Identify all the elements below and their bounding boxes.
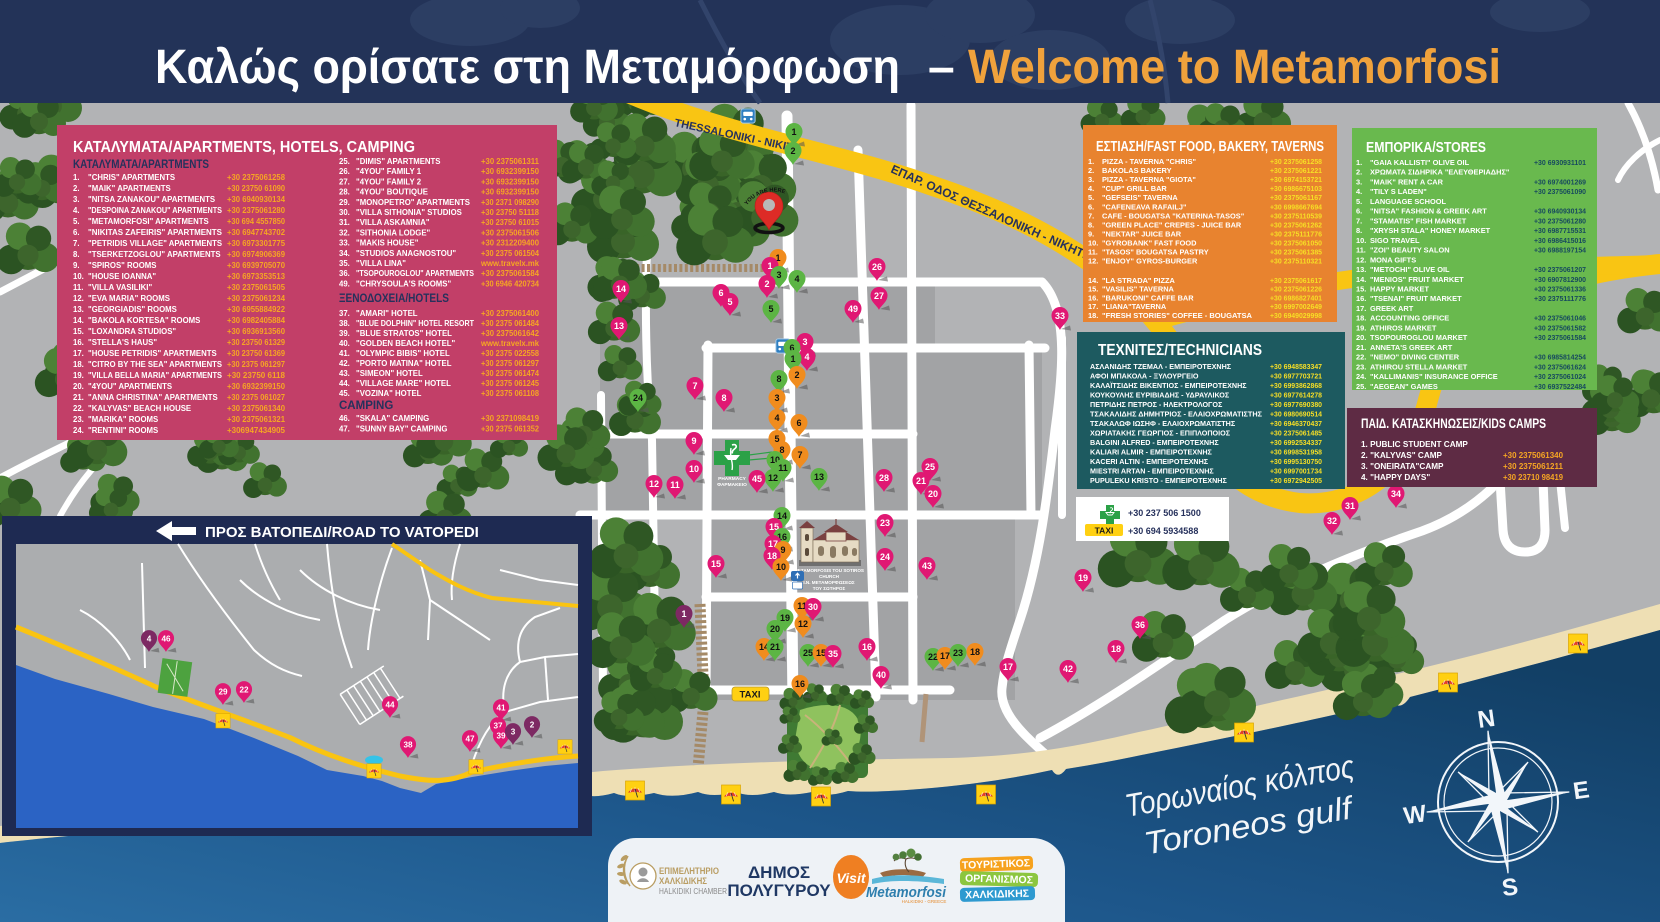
svg-text:ΠΕΤΡΙΔΗΣ ΠΕΤΡΟΣ - ΗΛΕΚΤΡΟΛΟΓΟΣ: ΠΕΤΡΙΔΗΣ ΠΕΤΡΟΣ - ΗΛΕΚΤΡΟΛΟΓΟΣ bbox=[1090, 400, 1223, 409]
svg-text:"EVA MARIA" ROOMS: "EVA MARIA" ROOMS bbox=[88, 294, 170, 303]
svg-text:9: 9 bbox=[691, 436, 696, 446]
svg-text:+30 6988197154: +30 6988197154 bbox=[1534, 246, 1587, 255]
svg-text:47.: 47. bbox=[339, 425, 350, 434]
svg-text:8.: 8. bbox=[1356, 226, 1362, 235]
svg-text:+30 2375061090: +30 2375061090 bbox=[1534, 187, 1586, 196]
svg-text:"GEFSEIS" TAVERNA: "GEFSEIS" TAVERNA bbox=[1102, 193, 1178, 202]
svg-text:35: 35 bbox=[828, 649, 838, 659]
svg-text:Visit: Visit bbox=[836, 870, 866, 886]
svg-text:8: 8 bbox=[776, 374, 781, 384]
svg-text:+30 2375061400: +30 2375061400 bbox=[481, 309, 540, 318]
svg-text:23.: 23. bbox=[1356, 362, 1366, 371]
svg-text:7: 7 bbox=[797, 450, 802, 460]
svg-text:PHARMACY: PHARMACY bbox=[718, 476, 747, 482]
svg-text:+30 6998667694: +30 6998667694 bbox=[1270, 202, 1323, 211]
svg-text:38: 38 bbox=[403, 741, 413, 750]
svg-text:2: 2 bbox=[764, 279, 769, 289]
svg-text:+30 2375061340: +30 2375061340 bbox=[1503, 451, 1563, 460]
svg-text:17.: 17. bbox=[1088, 302, 1098, 311]
svg-text:+30 6998531958: +30 6998531958 bbox=[1270, 448, 1322, 457]
svg-text:34: 34 bbox=[1391, 489, 1401, 499]
svg-text:ΕΣΤΙΑΣΗ/FAST FOOD, BAKERY, TAV: ΕΣΤΙΑΣΗ/FAST FOOD, BAKERY, TAVERNS bbox=[1096, 139, 1324, 155]
svg-text:ATHIROS MARKET: ATHIROS MARKET bbox=[1370, 323, 1437, 332]
svg-text:33: 33 bbox=[1055, 311, 1065, 321]
svg-text:9.: 9. bbox=[73, 261, 80, 270]
svg-text:ΤΣΑΚΑΛΩΦ ΙΩΣΗΦ - ΕΛΑΙΟΧΡΩΜΑΤΙΣ: ΤΣΑΚΑΛΩΦ ΙΩΣΗΦ - ΕΛΑΙΟΧΡΩΜΑΤΙΣΤΗΣ bbox=[1090, 419, 1236, 428]
svg-text:ΤΟΥ ΣΩΤΗΡΟΣ: ΤΟΥ ΣΩΤΗΡΟΣ bbox=[813, 586, 846, 591]
svg-text:"TSERKETZOGLOU" APARTMENTS: "TSERKETZOGLOU" APARTMENTS bbox=[88, 250, 221, 259]
svg-text:+30 23750 61369: +30 23750 61369 bbox=[227, 349, 286, 358]
svg-text:2: 2 bbox=[530, 721, 535, 730]
svg-text:6: 6 bbox=[718, 288, 723, 298]
svg-text:46: 46 bbox=[161, 635, 171, 644]
svg-text:49: 49 bbox=[848, 304, 858, 314]
svg-text:"CITRO BY THE SEA" APARTMENTS: "CITRO BY THE SEA" APARTMENTS bbox=[88, 360, 222, 369]
svg-text:6: 6 bbox=[796, 418, 801, 428]
svg-text:+30 6986675103: +30 6986675103 bbox=[1270, 184, 1322, 193]
svg-text:21: 21 bbox=[770, 642, 780, 652]
svg-text:ΞΕΝΟΔΟΧΕΙΑ/HOTELS: ΞΕΝΟΔΟΧΕΙΑ/HOTELS bbox=[339, 293, 449, 305]
svg-text:7.: 7. bbox=[1356, 216, 1362, 225]
svg-text:7: 7 bbox=[692, 381, 697, 391]
svg-text:31.: 31. bbox=[339, 218, 350, 227]
svg-text:+30 2375061167: +30 2375061167 bbox=[1270, 193, 1322, 202]
svg-text:30.: 30. bbox=[339, 208, 350, 217]
svg-text:"VILLA LINA": "VILLA LINA" bbox=[356, 259, 406, 268]
svg-text:4.: 4. bbox=[1356, 187, 1362, 196]
svg-text:3: 3 bbox=[511, 728, 516, 737]
svg-text:20: 20 bbox=[928, 489, 938, 499]
svg-text:+30 6940930134: +30 6940930134 bbox=[227, 195, 286, 204]
svg-text:7.: 7. bbox=[1088, 211, 1094, 220]
svg-text:5.: 5. bbox=[1088, 193, 1094, 202]
svg-text:+30 6993862868: +30 6993862868 bbox=[1270, 381, 1322, 390]
svg-text:6.: 6. bbox=[73, 228, 80, 237]
svg-text:"VILLA ASKAMNIA": "VILLA ASKAMNIA" bbox=[356, 218, 430, 227]
svg-text:4.: 4. bbox=[73, 206, 80, 215]
svg-text:+30 6992534337: +30 6992534337 bbox=[1270, 438, 1322, 447]
svg-text:4: 4 bbox=[804, 352, 809, 362]
svg-text:"NEMO" DIVING CENTER: "NEMO" DIVING CENTER bbox=[1370, 353, 1460, 362]
svg-text:18.: 18. bbox=[1356, 314, 1366, 323]
svg-text:ΑΦΟΙ ΜΠΑΚΟΛΑ - ΞΥΛΟΥΡΓΕΙΟ: ΑΦΟΙ ΜΠΑΚΟΛΑ - ΞΥΛΟΥΡΓΕΙΟ bbox=[1090, 372, 1199, 381]
svg-text:20.: 20. bbox=[73, 382, 84, 391]
svg-text:ΤΣΑΚΑΛΙΔΗΣ ΔΗΜΗΤΡΙΟΣ - ΕΛΑΙΟΧΡ: ΤΣΑΚΑΛΙΔΗΣ ΔΗΜΗΤΡΙΟΣ - ΕΛΑΙΟΧΡΩΜΑΤΙΣΤΗΣ bbox=[1090, 410, 1263, 419]
svg-text:4. "HAPPY DAYS": 4. "HAPPY DAYS" bbox=[1361, 473, 1430, 482]
svg-text:34.: 34. bbox=[339, 249, 350, 258]
svg-text:"MAIK" APARTMENTS: "MAIK" APARTMENTS bbox=[88, 184, 171, 193]
svg-text:+30 2371098419: +30 2371098419 bbox=[481, 414, 540, 423]
svg-text:+30 2375110321: +30 2375110321 bbox=[1270, 257, 1322, 266]
svg-text:"MONOPETRO" APARTMENTS: "MONOPETRO" APARTMENTS bbox=[356, 198, 470, 207]
svg-text:SIGO TRAVEL: SIGO TRAVEL bbox=[1370, 236, 1420, 245]
svg-text:12.: 12. bbox=[1088, 257, 1098, 266]
svg-text:+30 2375 022558: +30 2375 022558 bbox=[481, 349, 540, 358]
svg-text:13: 13 bbox=[814, 472, 824, 482]
svg-text:HALKIDIKI CHAMBER: HALKIDIKI CHAMBER bbox=[659, 886, 727, 896]
svg-text:+30 6936913560: +30 6936913560 bbox=[227, 327, 286, 336]
svg-text:10.: 10. bbox=[1088, 239, 1098, 248]
svg-text:16: 16 bbox=[862, 642, 872, 652]
svg-text:"GOLDEN BEACH HOTEL": "GOLDEN BEACH HOTEL" bbox=[356, 339, 456, 348]
svg-text:+30 6946370437: +30 6946370437 bbox=[1270, 419, 1322, 428]
svg-text:32: 32 bbox=[1327, 516, 1337, 526]
svg-text:PIZZA - TAVERNA "CHRIS": PIZZA - TAVERNA "CHRIS" bbox=[1102, 157, 1197, 166]
svg-text:"NITSA" FASHION & GREEK ART: "NITSA" FASHION & GREEK ART bbox=[1370, 207, 1487, 216]
svg-text:KACERI ALTIN - ΕΜΠΕΙΡΟΤΕΧΝΗΣ: KACERI ALTIN - ΕΜΠΕΙΡΟΤΕΧΝΗΣ bbox=[1090, 457, 1209, 466]
svg-text:MIESTRI ARTAN - ΕΜΠΕΙΡΟΤΕΧΝΗΣ: MIESTRI ARTAN - ΕΜΠΕΙΡΟΤΕΧΝΗΣ bbox=[1090, 467, 1214, 476]
svg-text:5: 5 bbox=[768, 304, 773, 314]
svg-text:+30 6937522484: +30 6937522484 bbox=[1534, 382, 1587, 391]
svg-text:36.: 36. bbox=[339, 269, 350, 278]
svg-text:"DIMIS" APARTMENTS: "DIMIS" APARTMENTS bbox=[356, 157, 441, 166]
svg-text:+30 694 4557850: +30 694 4557850 bbox=[227, 217, 286, 226]
svg-text:+30 2375110539: +30 2375110539 bbox=[1270, 211, 1322, 220]
svg-text:GREEK ART: GREEK ART bbox=[1370, 304, 1414, 313]
svg-text:"SIMEON" HOTEL: "SIMEON" HOTEL bbox=[356, 369, 423, 378]
svg-text:+30 2375061642: +30 2375061642 bbox=[481, 329, 540, 338]
svg-text:TSOPOUROGLOU MARKET: TSOPOUROGLOU MARKET bbox=[1370, 333, 1468, 342]
svg-text:+30 2375061226: +30 2375061226 bbox=[1270, 285, 1322, 294]
svg-text:22: 22 bbox=[239, 686, 249, 695]
svg-text:+30 6995130750: +30 6995130750 bbox=[1270, 457, 1322, 466]
svg-text:METAMORFOSIS TOU SOTIROS: METAMORFOSIS TOU SOTIROS bbox=[794, 568, 864, 573]
svg-text:21.: 21. bbox=[1356, 343, 1366, 352]
svg-text:"NEKTAR" JUICE BAR: "NEKTAR" JUICE BAR bbox=[1102, 229, 1182, 238]
svg-text:+30 6932399150: +30 6932399150 bbox=[481, 188, 540, 197]
svg-text:35.: 35. bbox=[339, 259, 350, 268]
svg-text:TAXI: TAXI bbox=[1095, 526, 1114, 536]
svg-text:Καλώς ορίσατε στη Μεταμόρφωση: Καλώς ορίσατε στη Μεταμόρφωση bbox=[155, 41, 900, 94]
svg-text:24.: 24. bbox=[1356, 372, 1366, 381]
svg-text:44: 44 bbox=[385, 701, 395, 710]
svg-text:1.: 1. bbox=[1356, 158, 1362, 167]
svg-text:+30 2375061336: +30 2375061336 bbox=[1534, 285, 1586, 294]
svg-text:+30 6986827401: +30 6986827401 bbox=[1270, 293, 1322, 302]
svg-text:www.travelx.mk: www.travelx.mk bbox=[480, 259, 540, 268]
svg-text:+30 694 5934588: +30 694 5934588 bbox=[1128, 526, 1198, 536]
svg-text:3.: 3. bbox=[1088, 175, 1094, 184]
svg-text:40: 40 bbox=[876, 670, 886, 680]
svg-text:42: 42 bbox=[1063, 664, 1073, 674]
svg-text:"4YOU" FAMILY 1: "4YOU" FAMILY 1 bbox=[356, 167, 422, 176]
svg-text:"GYROBANK" FAST FOOD: "GYROBANK" FAST FOOD bbox=[1102, 239, 1197, 248]
svg-text:9: 9 bbox=[780, 545, 785, 555]
svg-text:43.: 43. bbox=[339, 369, 350, 378]
svg-text:ΔΗΜΟΣ: ΔΗΜΟΣ bbox=[748, 863, 810, 882]
svg-text:+30 23750 61329: +30 23750 61329 bbox=[227, 338, 286, 347]
svg-text:24: 24 bbox=[880, 552, 890, 562]
svg-text:ACCOUNTING OFFICE: ACCOUNTING OFFICE bbox=[1370, 314, 1449, 323]
svg-text:ΠΡΟΣ ΒΑΤΟΠΕΔΙ/ROAD TO VATOPEDI: ΠΡΟΣ ΒΑΤΟΠΕΔΙ/ROAD TO VATOPEDI bbox=[205, 524, 479, 541]
svg-text:2.: 2. bbox=[73, 184, 80, 193]
svg-text:2. "KALYVAS" CAMP: 2. "KALYVAS" CAMP bbox=[1361, 451, 1443, 460]
svg-text:PIZZA - TAVERNA "GIOTA": PIZZA - TAVERNA "GIOTA" bbox=[1102, 175, 1196, 184]
svg-text:1.: 1. bbox=[1088, 157, 1094, 166]
svg-text:"BLUE STRATOS" HOTEL: "BLUE STRATOS" HOTEL bbox=[356, 329, 452, 338]
svg-text:17.: 17. bbox=[1356, 304, 1366, 313]
svg-text:15.: 15. bbox=[73, 327, 84, 336]
svg-text:ΟΡΓΑΝΙΣΜΟΣ: ΟΡΓΑΝΙΣΜΟΣ bbox=[965, 873, 1033, 887]
svg-text:+30 2375061050: +30 2375061050 bbox=[1270, 239, 1322, 248]
svg-text:21.: 21. bbox=[73, 393, 84, 402]
svg-text:44.: 44. bbox=[339, 379, 350, 388]
svg-text:"MAIK" RENT A CAR: "MAIK" RENT A CAR bbox=[1370, 178, 1444, 187]
svg-text:"PORTO MATINA" HOTEL: "PORTO MATINA" HOTEL bbox=[356, 359, 452, 368]
svg-text:ΧΩΡΙΑΤΑΚΗΣ ΓΕΩΡΓΙΟΣ - ΕΠΙΠΛΟΠΟ: ΧΩΡΙΑΤΑΚΗΣ ΓΕΩΡΓΙΟΣ - ΕΠΙΠΛΟΠΟΙΟΣ bbox=[1090, 429, 1231, 438]
svg-text:+30 6985814254: +30 6985814254 bbox=[1534, 353, 1587, 362]
svg-text:23.: 23. bbox=[73, 415, 84, 424]
svg-text:"TSENAI" FRUIT MARKET: "TSENAI" FRUIT MARKET bbox=[1370, 294, 1462, 303]
svg-text:+30 2375061506: +30 2375061506 bbox=[481, 228, 540, 237]
svg-text:11.: 11. bbox=[1088, 248, 1098, 257]
svg-text:11: 11 bbox=[670, 480, 680, 490]
svg-text:"VILLA SITHONIA" STUDIOS: "VILLA SITHONIA" STUDIOS bbox=[356, 208, 462, 217]
svg-text:www.travelx.mk: www.travelx.mk bbox=[480, 339, 540, 348]
svg-text:"MARIKA" ROOMS: "MARIKA" ROOMS bbox=[88, 415, 158, 424]
svg-text:16.: 16. bbox=[1356, 294, 1366, 303]
svg-text:37.: 37. bbox=[339, 309, 350, 318]
svg-text:"KALLIMANIS" INSURANCE OFFICE: "KALLIMANIS" INSURANCE OFFICE bbox=[1370, 372, 1498, 381]
svg-text:"BARUKONI" CAFFE BAR: "BARUKONI" CAFFE BAR bbox=[1102, 293, 1194, 302]
svg-text:2.: 2. bbox=[1356, 168, 1362, 177]
svg-text:4: 4 bbox=[147, 635, 152, 644]
svg-text:CAFE - BOUGATSA "KATERINA-TASO: CAFE - BOUGATSA "KATERINA-TASOS" bbox=[1102, 211, 1245, 220]
svg-text:1: 1 bbox=[767, 261, 772, 271]
svg-text:11.: 11. bbox=[1356, 246, 1366, 255]
svg-text:"4YOU" FAMILY 2: "4YOU" FAMILY 2 bbox=[356, 177, 422, 186]
svg-text:1: 1 bbox=[790, 354, 795, 364]
svg-text:22.: 22. bbox=[73, 404, 84, 413]
svg-text:ΚΟΥΚΟΥΛΗΣ ΕΥΡΙΒΙΑΔΗΣ - ΥΔΡΑΥΛΙ: ΚΟΥΚΟΥΛΗΣ ΕΥΡΙΒΙΑΔΗΣ - ΥΔΡΑΥΛΙΚΟΣ bbox=[1090, 391, 1230, 400]
svg-text:ΕΠΙΜΕΛΗΤΗΡΙΟ: ΕΠΙΜΕΛΗΤΗΡΙΟ bbox=[659, 866, 719, 876]
svg-text:22.: 22. bbox=[1356, 353, 1366, 362]
svg-text:28.: 28. bbox=[339, 188, 350, 197]
svg-text:+30 2375 061352: +30 2375 061352 bbox=[481, 425, 540, 434]
svg-text:19.: 19. bbox=[73, 371, 84, 380]
svg-text:31: 31 bbox=[1345, 501, 1355, 511]
svg-text:5: 5 bbox=[727, 297, 732, 307]
svg-text:+30 2375061280: +30 2375061280 bbox=[1534, 216, 1586, 225]
svg-text:18.: 18. bbox=[73, 360, 84, 369]
svg-text:"RENTINI" ROOMS: "RENTINI" ROOMS bbox=[88, 426, 158, 435]
svg-text:8: 8 bbox=[721, 393, 726, 403]
svg-text:+30 2375061311: +30 2375061311 bbox=[481, 157, 540, 166]
svg-text:45: 45 bbox=[752, 474, 762, 484]
svg-text:"NIKITAS ZAFEIRIS" APARTMENTS: "NIKITAS ZAFEIRIS" APARTMENTS bbox=[88, 228, 222, 237]
svg-text:+30 6932399150: +30 6932399150 bbox=[481, 167, 540, 176]
svg-text:20.: 20. bbox=[1356, 333, 1366, 342]
svg-text:25.: 25. bbox=[339, 157, 350, 166]
svg-text:+30 23750 6118: +30 23750 6118 bbox=[227, 371, 286, 380]
svg-text:+30 6986415016: +30 6986415016 bbox=[1534, 236, 1586, 245]
svg-text:+30 2375061617: +30 2375061617 bbox=[1270, 276, 1322, 285]
svg-text:"STUDIOS ANAGNOSTOU": "STUDIOS ANAGNOSTOU" bbox=[356, 249, 456, 258]
svg-text:+30 2375 061027: +30 2375 061027 bbox=[227, 393, 285, 402]
svg-text:+30 6974153721: +30 6974153721 bbox=[1270, 175, 1322, 184]
svg-text:"SKALA" CAMPING: "SKALA" CAMPING bbox=[356, 414, 429, 423]
svg-text:14.: 14. bbox=[1356, 275, 1366, 284]
svg-text:KALIARI ALMIR - ΕΜΠΕΙΡΟΤΕΧΝΗΣ: KALIARI ALMIR - ΕΜΠΕΙΡΟΤΕΧΝΗΣ bbox=[1090, 448, 1213, 457]
svg-text:ΚΑΛΑΪΤΣΙΔΗΣ ΒΙΚΕΝΤΙΟΣ - ΕΜΠΕΙΡ: ΚΑΛΑΪΤΣΙΔΗΣ ΒΙΚΕΝΤΙΟΣ - ΕΜΠΕΙΡΟΤΕΧΝΗΣ bbox=[1090, 381, 1247, 390]
svg-text:13.: 13. bbox=[1356, 265, 1366, 274]
svg-text:"TILY S LADEN": "TILY S LADEN" bbox=[1370, 187, 1427, 196]
svg-text:+30 6974001269: +30 6974001269 bbox=[1534, 178, 1586, 187]
svg-text:39.: 39. bbox=[339, 329, 350, 338]
svg-text:+30 2375061234: +30 2375061234 bbox=[227, 294, 286, 303]
svg-text:45.: 45. bbox=[339, 389, 350, 398]
svg-text:+30 23750 61015: +30 23750 61015 bbox=[481, 218, 540, 227]
svg-text:5.: 5. bbox=[73, 217, 80, 226]
svg-text:2.: 2. bbox=[1088, 166, 1094, 175]
svg-text:49.: 49. bbox=[339, 279, 350, 288]
svg-text:+30 2375061582: +30 2375061582 bbox=[1534, 323, 1586, 332]
svg-text:39: 39 bbox=[496, 732, 506, 741]
svg-text:+30 2375 061297: +30 2375 061297 bbox=[227, 360, 285, 369]
svg-text:+30 2375061221: +30 2375061221 bbox=[1270, 166, 1322, 175]
svg-text:19.: 19. bbox=[1356, 323, 1366, 332]
svg-text:"TSOPOUROGLOU" APARTMENTS: "TSOPOUROGLOU" APARTMENTS bbox=[356, 269, 474, 278]
svg-text:"VILLA BELLA MARIA" APARTMENTS: "VILLA BELLA MARIA" APARTMENTS bbox=[88, 371, 222, 380]
svg-text:ΧΡΩΜΑΤΑ ΣΙΔΗΡΙΚΑ "ΕΛΕΥΘΕΡΙΑΔΗΣ: ΧΡΩΜΑΤΑ ΣΙΔΗΡΙΚΑ "ΕΛΕΥΘΕΡΙΑΔΗΣ" bbox=[1370, 168, 1510, 177]
svg-text:3: 3 bbox=[802, 337, 807, 347]
svg-text:"DESPOINA ZANAKOU" APARTMENTS: "DESPOINA ZANAKOU" APARTMENTS bbox=[88, 206, 222, 215]
svg-text:BALGINI ALFRED - ΕΜΠΕΙΡΟΤΕΧΝΗΣ: BALGINI ALFRED - ΕΜΠΕΙΡΟΤΕΧΝΗΣ bbox=[1090, 438, 1219, 447]
svg-text:18: 18 bbox=[1111, 644, 1121, 654]
svg-text:36: 36 bbox=[1135, 620, 1145, 630]
svg-text:24.: 24. bbox=[73, 426, 84, 435]
svg-text:+30 6977690380: +30 6977690380 bbox=[1270, 400, 1322, 409]
svg-text:10.: 10. bbox=[1356, 236, 1366, 245]
svg-text:1: 1 bbox=[681, 609, 686, 619]
svg-text:42.: 42. bbox=[339, 359, 350, 368]
svg-text:3.: 3. bbox=[73, 195, 80, 204]
svg-text:+30 2375061340: +30 2375061340 bbox=[227, 404, 286, 413]
svg-text:"VASILIS" TAVERNA: "VASILIS" TAVERNA bbox=[1102, 285, 1175, 294]
svg-text:+30 6987715531: +30 6987715531 bbox=[1534, 226, 1586, 235]
svg-text:"FRESH STORIES" COFFEE - BOUGA: "FRESH STORIES" COFFEE - BOUGATSA bbox=[1102, 311, 1253, 320]
svg-text:14.: 14. bbox=[1088, 276, 1098, 285]
svg-text:41.: 41. bbox=[339, 349, 350, 358]
svg-text:11.: 11. bbox=[73, 283, 83, 292]
svg-text:38.: 38. bbox=[339, 319, 350, 328]
svg-text:18: 18 bbox=[970, 647, 980, 657]
svg-text:28: 28 bbox=[879, 473, 889, 483]
svg-text:15: 15 bbox=[711, 559, 721, 569]
svg-text:"CUP" GRILL BAR: "CUP" GRILL BAR bbox=[1102, 184, 1167, 193]
svg-text:+30 6973301775: +30 6973301775 bbox=[227, 239, 286, 248]
svg-text:"MAKIS HOUSE": "MAKIS HOUSE" bbox=[356, 239, 419, 248]
svg-text:17: 17 bbox=[940, 651, 950, 661]
svg-text:25.: 25. bbox=[1356, 382, 1366, 391]
svg-text:ANNETA'S GREEK ART: ANNETA'S GREEK ART bbox=[1370, 343, 1453, 352]
svg-text:+30 6997002649: +30 6997002649 bbox=[1270, 302, 1322, 311]
svg-text:8.: 8. bbox=[1088, 220, 1094, 229]
svg-text:"METOCHI" OLIVE OIL: "METOCHI" OLIVE OIL bbox=[1370, 265, 1450, 274]
svg-text:HAPPY MARKET: HAPPY MARKET bbox=[1370, 285, 1429, 294]
svg-text:+30 6977703721: +30 6977703721 bbox=[1270, 372, 1322, 381]
svg-text:+30 6907812900: +30 6907812900 bbox=[1534, 275, 1586, 284]
svg-text:33.: 33. bbox=[339, 239, 350, 248]
svg-text:+30 2375061624: +30 2375061624 bbox=[1534, 362, 1587, 371]
svg-text:"HOUSE PETRIDIS" APARTMENTS: "HOUSE PETRIDIS" APARTMENTS bbox=[88, 349, 217, 358]
svg-text:12.: 12. bbox=[1356, 255, 1366, 264]
svg-text:"GEORGIADIS" ROOMS: "GEORGIADIS" ROOMS bbox=[88, 305, 177, 314]
svg-text:17.: 17. bbox=[73, 349, 84, 358]
svg-text:ΚΑΤΑΛΥΜΑΤΑ/APARTMENTS: ΚΑΤΑΛΥΜΑΤΑ/APARTMENTS bbox=[73, 159, 209, 171]
svg-text:23: 23 bbox=[953, 648, 963, 658]
svg-text:"LIANA"TAVERNA: "LIANA"TAVERNA bbox=[1102, 302, 1167, 311]
svg-text:+30 2375061321: +30 2375061321 bbox=[227, 415, 286, 424]
svg-text:ATHIROU STELLA MARKET: ATHIROU STELLA MARKET bbox=[1370, 362, 1468, 371]
svg-text:+30 6949029998: +30 6949029998 bbox=[1270, 311, 1322, 320]
svg-text:"SPIROS" ROOMS: "SPIROS" ROOMS bbox=[88, 261, 156, 270]
svg-text:ΚΑΤΑΛΥΜΑΤΑ/APARTMENTS, HOTELS,: ΚΑΤΑΛΥΜΑΤΑ/APARTMENTS, HOTELS, CAMPING bbox=[73, 139, 415, 156]
svg-text:+30 6955884922: +30 6955884922 bbox=[227, 305, 286, 314]
svg-text:+30 2375 061504: +30 2375 061504 bbox=[481, 249, 540, 258]
svg-text:6.: 6. bbox=[1088, 202, 1094, 211]
svg-text:16.: 16. bbox=[1088, 293, 1098, 302]
svg-text:+30 6980690514: +30 6980690514 bbox=[1270, 410, 1322, 419]
svg-text:+30 2375061258: +30 2375061258 bbox=[227, 173, 286, 182]
svg-text:3.: 3. bbox=[1356, 178, 1362, 187]
svg-text:"GREEN PLACE" CREPES - JUICE B: "GREEN PLACE" CREPES - JUICE BAR bbox=[1102, 220, 1242, 229]
svg-text:24: 24 bbox=[633, 393, 643, 403]
svg-text:+30 2375061262: +30 2375061262 bbox=[1270, 220, 1322, 229]
svg-text:+30 6930931101: +30 6930931101 bbox=[1534, 158, 1586, 167]
svg-text:23: 23 bbox=[880, 518, 890, 528]
svg-text:+30 2375 061297: +30 2375 061297 bbox=[481, 359, 539, 368]
svg-text:MONA GIFTS: MONA GIFTS bbox=[1370, 255, 1416, 264]
svg-text:21: 21 bbox=[916, 476, 926, 486]
svg-text:"ENJOY" GYROS-BURGER: "ENJOY" GYROS-BURGER bbox=[1102, 257, 1198, 266]
svg-text:+30 6997001734: +30 6997001734 bbox=[1270, 467, 1322, 476]
svg-text:16: 16 bbox=[795, 679, 805, 689]
svg-text:+30 6947743702: +30 6947743702 bbox=[227, 228, 286, 237]
svg-text:+30 2375061385: +30 2375061385 bbox=[1270, 248, 1322, 257]
svg-text:+30 6932399150: +30 6932399150 bbox=[227, 382, 286, 391]
svg-text:13.: 13. bbox=[73, 305, 84, 314]
svg-text:+30 6973353513: +30 6973353513 bbox=[227, 272, 286, 281]
svg-text:PUPULEKU KRISTO - ΕΜΠΕΙΡΟΤΕΧΝΗ: PUPULEKU KRISTO - ΕΜΠΕΙΡΟΤΕΧΝΗΣ bbox=[1090, 476, 1227, 485]
svg-text:41: 41 bbox=[496, 704, 506, 713]
svg-text:26: 26 bbox=[872, 262, 882, 272]
svg-text:+30 6932399150: +30 6932399150 bbox=[481, 177, 540, 186]
svg-text:LANGUAGE SCHOOL: LANGUAGE SCHOOL bbox=[1370, 197, 1446, 206]
svg-text:29.: 29. bbox=[339, 198, 350, 207]
svg-text:+30 2375061258: +30 2375061258 bbox=[1270, 157, 1322, 166]
svg-text:"BAKOLA KORTESA" ROOMS: "BAKOLA KORTESA" ROOMS bbox=[88, 316, 200, 325]
svg-text:19: 19 bbox=[780, 613, 790, 623]
svg-text:18.: 18. bbox=[1088, 311, 1098, 320]
svg-text:30: 30 bbox=[808, 602, 818, 612]
svg-text:46.: 46. bbox=[339, 414, 350, 423]
svg-text:"STELLA'S HAUS": "STELLA'S HAUS" bbox=[88, 338, 157, 347]
svg-text:TAXI: TAXI bbox=[740, 690, 761, 701]
svg-text:26.: 26. bbox=[339, 167, 350, 176]
svg-text:27: 27 bbox=[874, 291, 884, 301]
svg-text:"4YOU" BOUTIQUE: "4YOU" BOUTIQUE bbox=[356, 188, 428, 197]
svg-text:15.: 15. bbox=[1088, 285, 1098, 294]
svg-text:+30 2375061207: +30 2375061207 bbox=[1534, 265, 1586, 274]
svg-text:+30 2375061280: +30 2375061280 bbox=[227, 206, 286, 215]
svg-text:+30 2375 061474: +30 2375 061474 bbox=[481, 369, 540, 378]
svg-text:9.: 9. bbox=[1088, 229, 1094, 238]
svg-text:"CHRYSOULA'S ROOMS": "CHRYSOULA'S ROOMS" bbox=[356, 279, 451, 288]
svg-text:"VILLAGE MARE" HOTEL: "VILLAGE MARE" HOTEL bbox=[356, 379, 451, 388]
svg-text:"KALYVAS" BEACH HOUSE: "KALYVAS" BEACH HOUSE bbox=[88, 404, 191, 413]
svg-text:40.: 40. bbox=[339, 339, 350, 348]
